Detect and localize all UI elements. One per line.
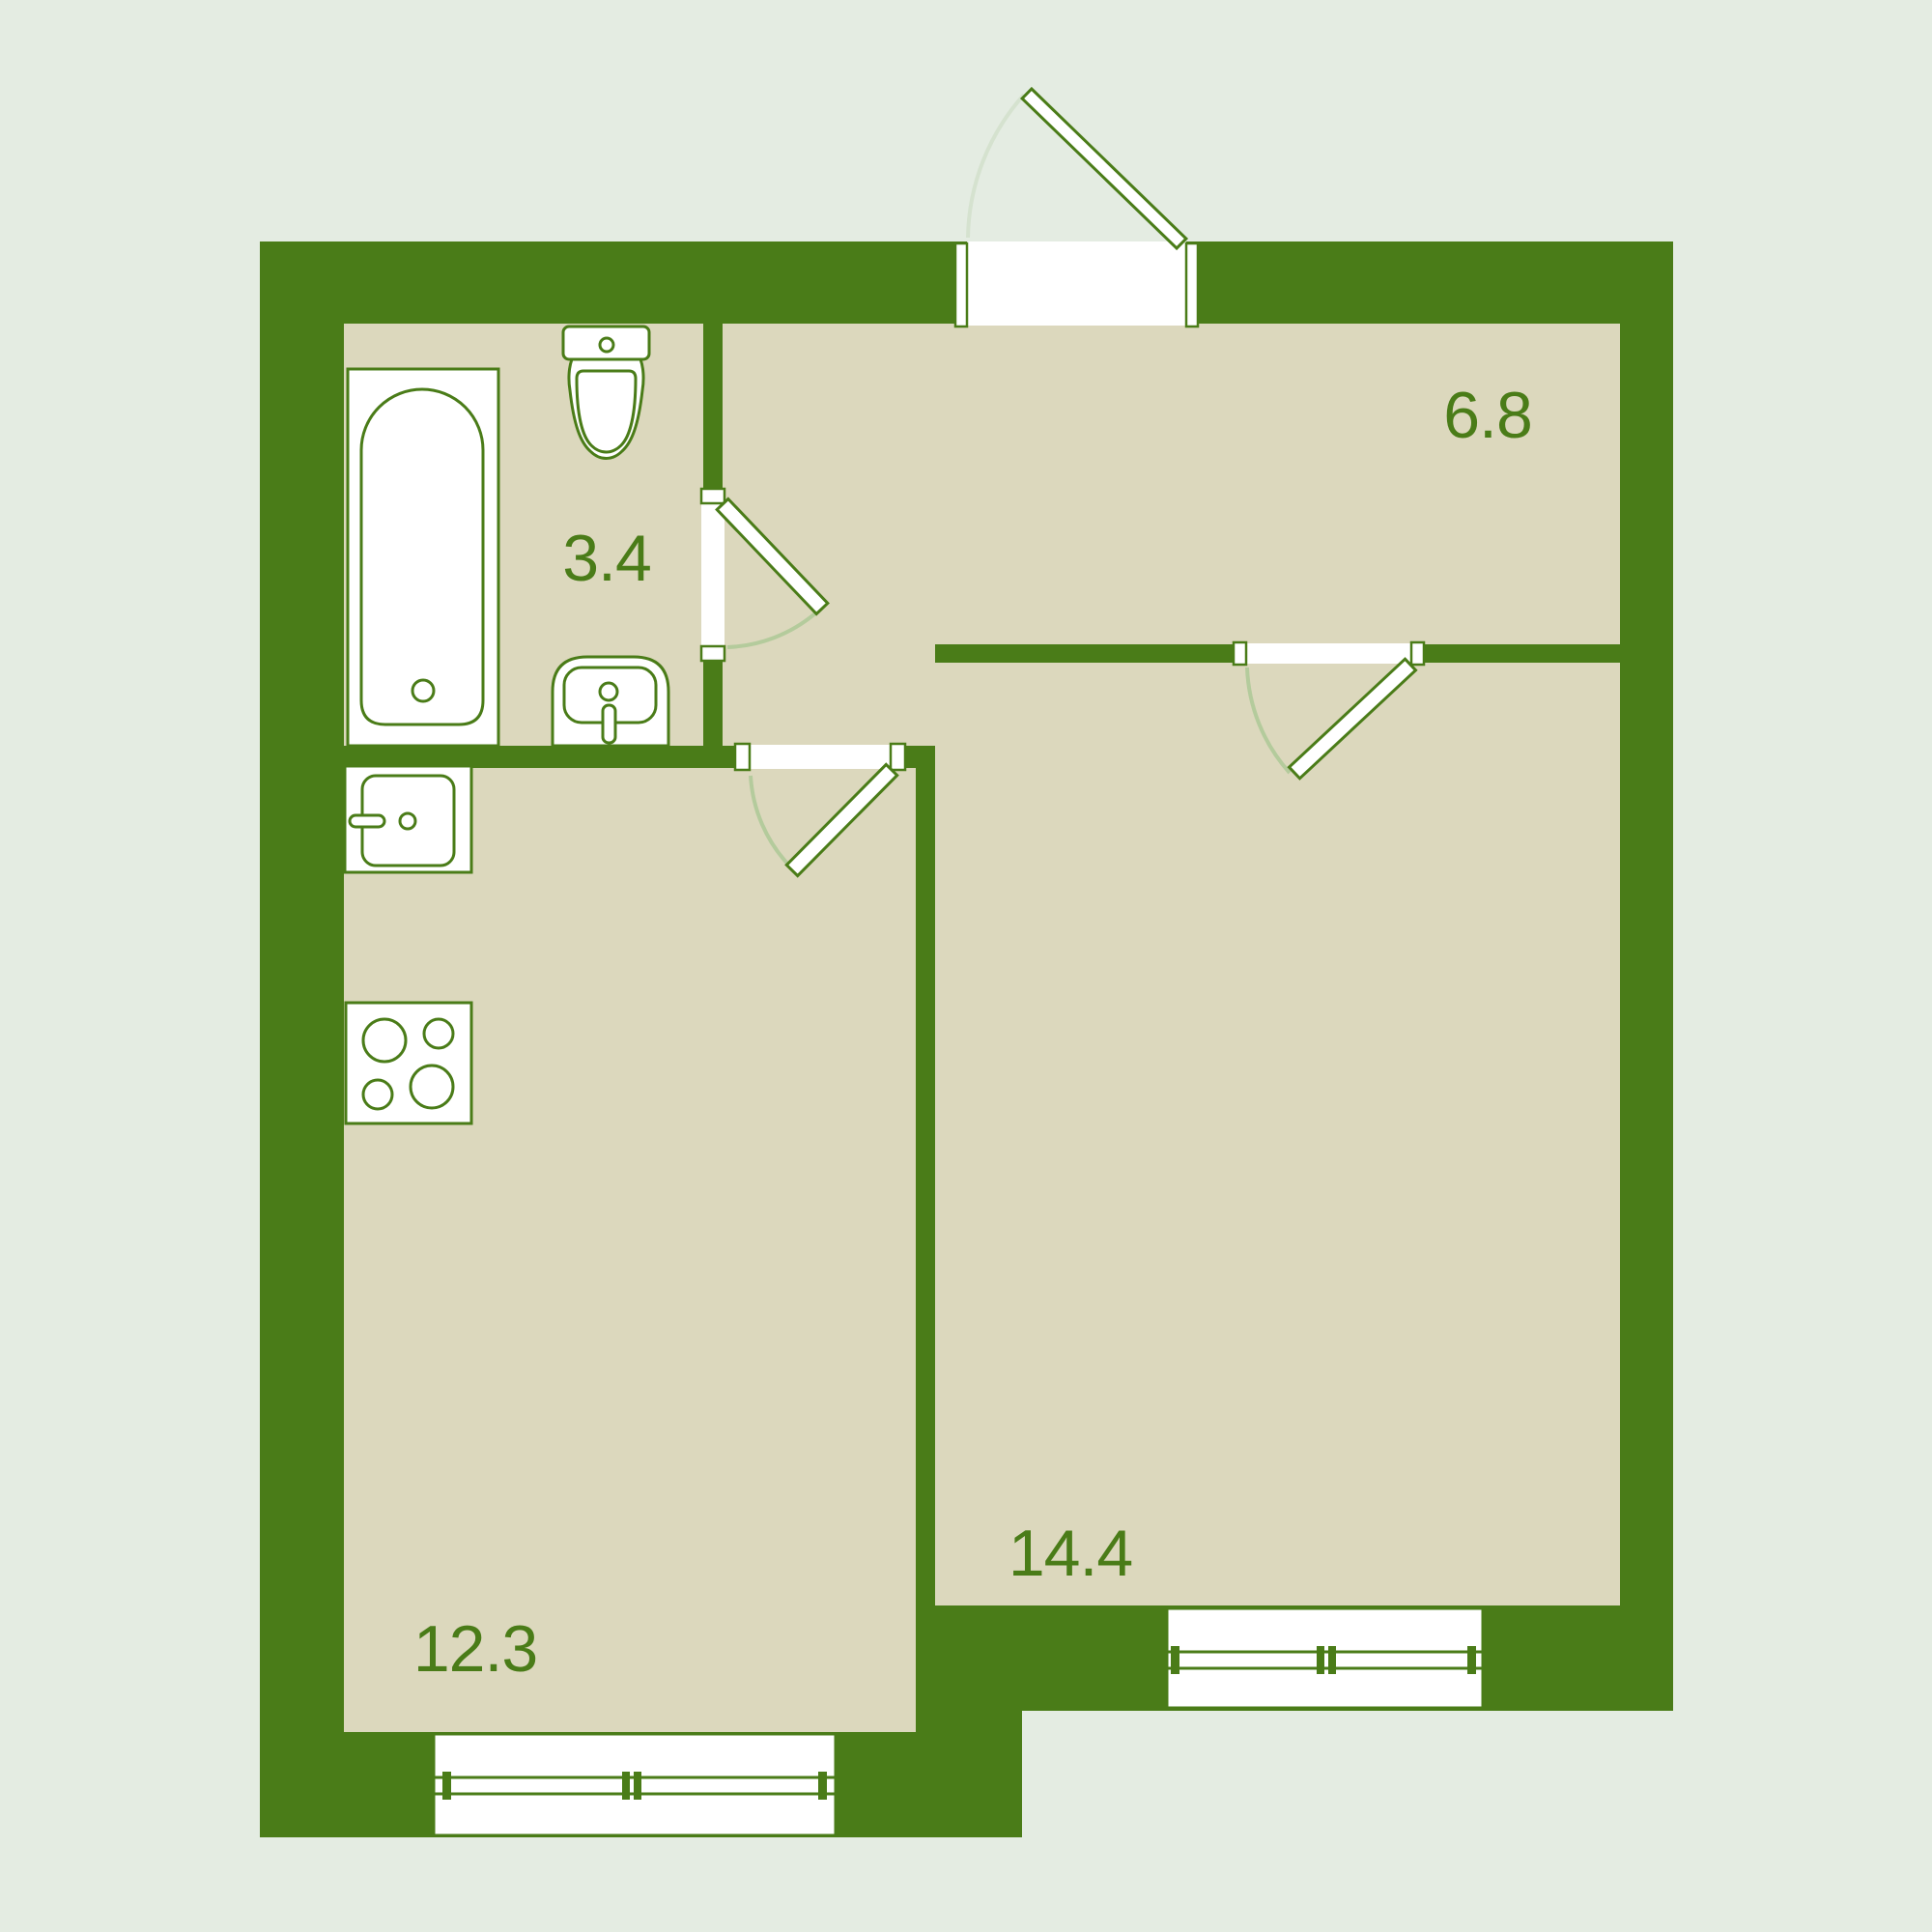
floor-plan-svg	[0, 0, 1932, 1932]
stove-burner-large-top	[363, 1019, 406, 1062]
plan-canvas: 3.4 6.8 12.3 14.4	[0, 0, 1932, 1932]
entrance-jamb-right	[1186, 243, 1198, 327]
bathroom-door-jamb-top	[701, 489, 724, 503]
stove-burner-large-bottom	[411, 1065, 453, 1108]
room-label-living-room: 14.4	[1009, 1520, 1132, 1586]
bathroom-door-opening	[701, 503, 724, 646]
living-room-window-mullion-center-a	[1317, 1646, 1324, 1674]
living-room-floor	[935, 663, 1620, 1605]
kitchen-window-mullion-left	[442, 1772, 451, 1800]
kitchen-window	[434, 1734, 836, 1835]
kitchen-window-mullion-center-b	[634, 1772, 641, 1800]
kitchen-door-opening	[750, 745, 891, 769]
entrance-door-arc	[968, 95, 1024, 238]
room-label-bathroom: 3.4	[562, 526, 651, 591]
living-room-door-opening	[1246, 643, 1411, 664]
room-label-kitchen: 12.3	[413, 1616, 537, 1682]
bathroom-door-jamb-bottom	[701, 646, 724, 661]
toilet-flush-button	[600, 338, 613, 352]
living-room-window-mullion-right	[1467, 1646, 1476, 1674]
living-room-window	[1167, 1608, 1483, 1708]
living-room-window-mullion-center-b	[1328, 1646, 1336, 1674]
entrance-door-leaf	[1022, 89, 1186, 248]
living-room-window-frame	[1167, 1608, 1483, 1708]
living-room-door-jamb-left	[1234, 642, 1246, 665]
bathtub-icon	[348, 369, 498, 746]
room-label-hallway: 6.8	[1443, 383, 1532, 448]
stove-burner-small-bottom	[363, 1080, 392, 1109]
kitchen-window-mullion-right	[818, 1772, 827, 1800]
bathroom-sink-icon	[553, 657, 668, 746]
entrance-door	[955, 89, 1198, 327]
kitchen-window-mullion-center-a	[622, 1772, 630, 1800]
stove-burner-small-top	[424, 1019, 453, 1048]
stove-icon	[346, 1003, 471, 1123]
entrance-jamb-left	[955, 243, 967, 327]
kitchen-sink-icon	[345, 766, 471, 872]
living-room-door-jamb-right	[1411, 642, 1424, 665]
living-room-window-mullion-left	[1171, 1646, 1179, 1674]
kitchen-door-jamb-left	[735, 744, 750, 770]
entrance-opening	[967, 241, 1186, 326]
kitchen-door-jamb-right	[891, 744, 905, 770]
kitchen-floor	[344, 768, 916, 1732]
